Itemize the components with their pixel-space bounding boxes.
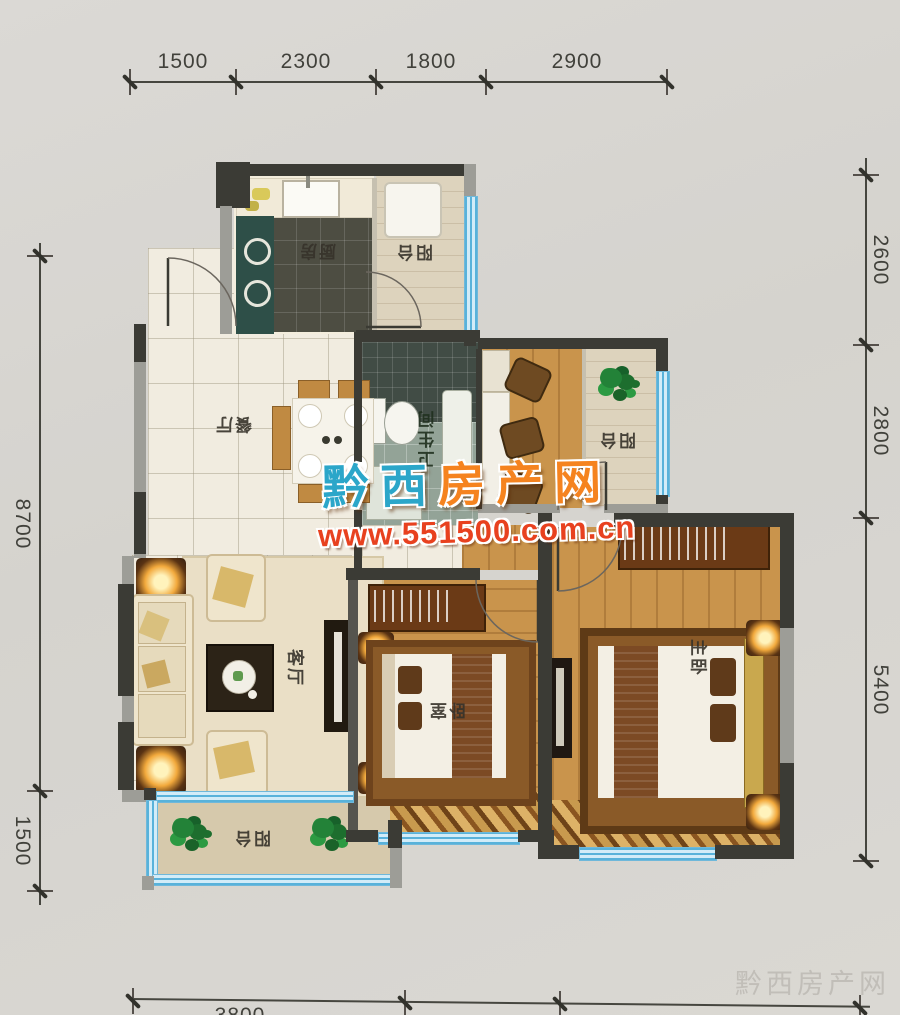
brand-name-part2: 房产网 — [438, 455, 613, 512]
corner-watermark: 黔西房产网 — [735, 962, 890, 1001]
room-label-kitchen: 厨房 — [298, 241, 336, 266]
floor-plan-photo: 厨房 阳台 卫生间 阳台 餐厅 客厅 卧室 主卧 阳台 1500 2300 18… — [0, 0, 900, 1015]
room-label-master: 主卧 — [688, 639, 713, 677]
bedroom-door-arc — [476, 580, 538, 642]
brand-name-part1: 黔西 — [322, 459, 439, 514]
entry-door-arc — [168, 258, 236, 326]
site-watermark-brand: 黔西房产网 — [321, 443, 612, 518]
room-label-bedroom: 卧室 — [428, 700, 466, 725]
balcony-top-door-arc — [366, 272, 421, 327]
room-label-balcony-top: 阳台 — [395, 242, 433, 267]
room-label-living: 客厅 — [285, 649, 310, 687]
room-label-balcony-bottom: 阳台 — [233, 828, 271, 853]
room-label-dining: 餐厅 — [214, 414, 252, 439]
